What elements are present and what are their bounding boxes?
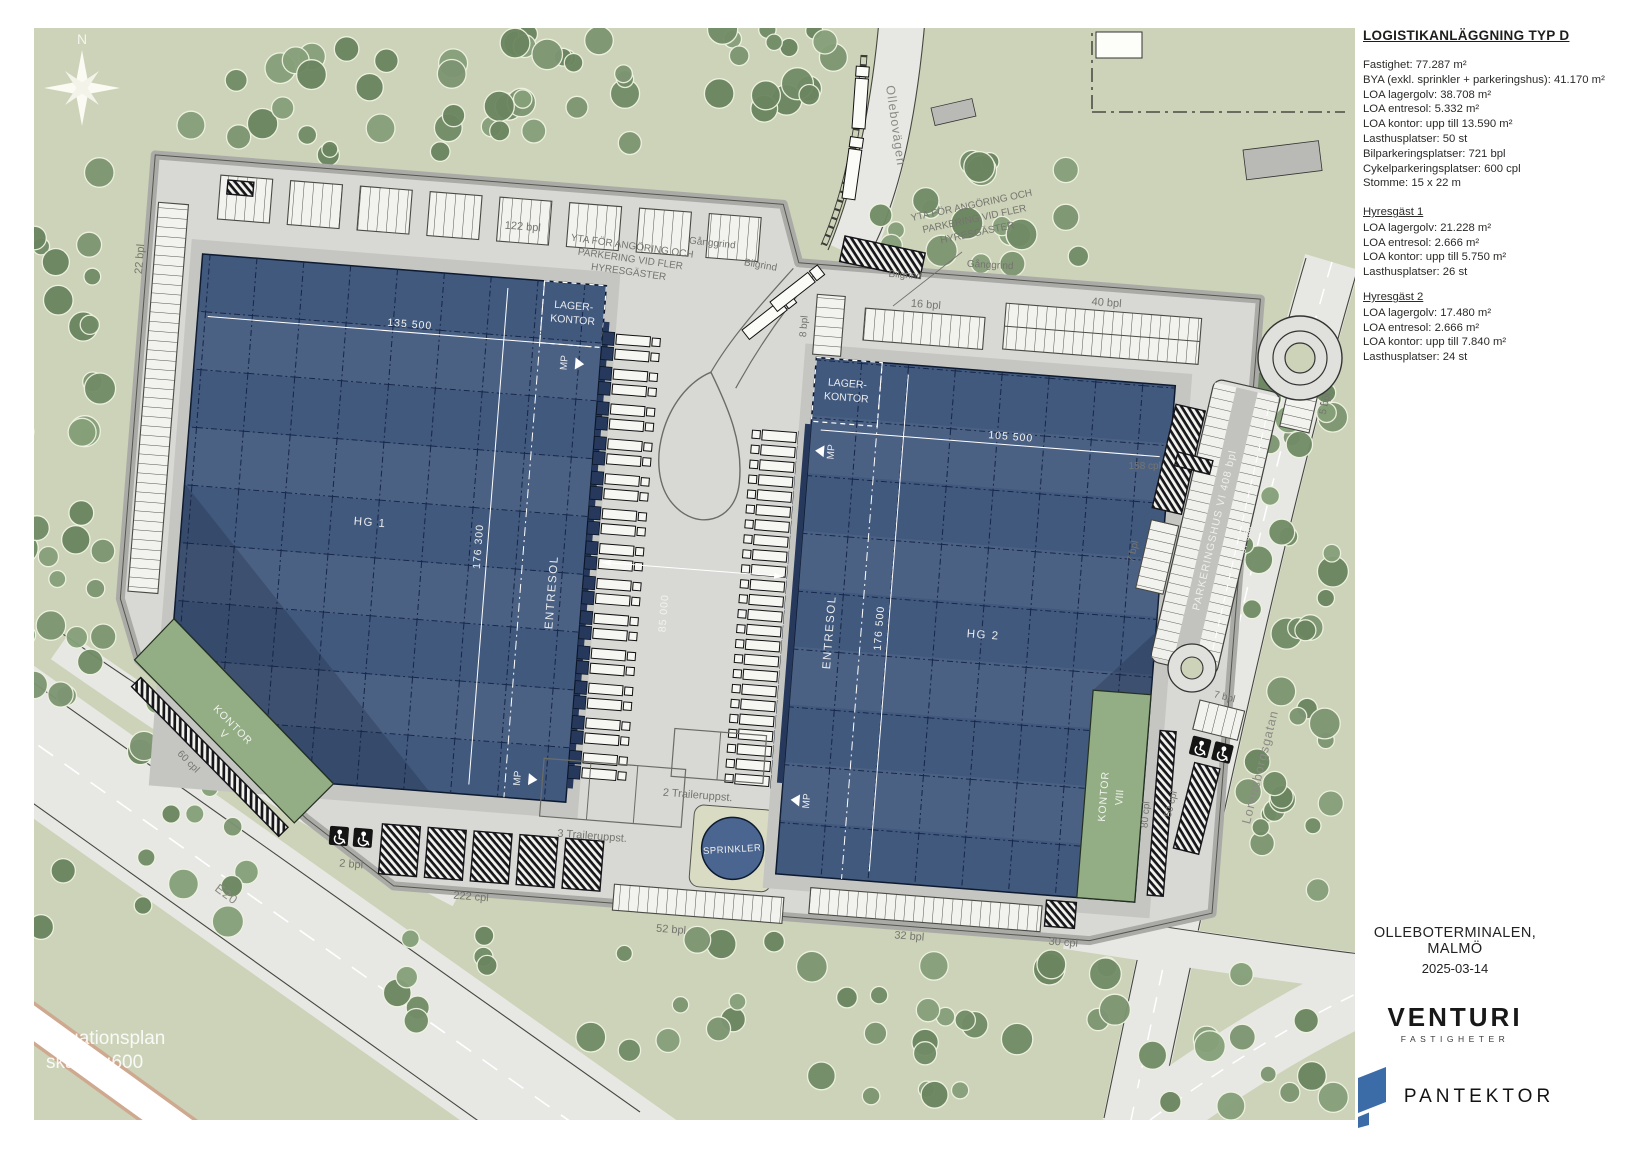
building-hg1: 135 500 176 300 ENTRESOL HG 1 LAGER- KON…: [108, 236, 621, 873]
tenant1-line: Lasthusplatser: 26 st: [1363, 265, 1506, 280]
tree: [952, 1082, 969, 1099]
facility-line: Bilparkeringsplatser: 721 bpl: [1363, 147, 1605, 162]
panel-title: LOGISTIKANLÄGGNING TYP D: [1363, 28, 1569, 43]
tree: [1318, 1082, 1348, 1112]
mp-label: MP: [825, 444, 837, 460]
cycle-count-80: 80 cpl: [1140, 801, 1153, 828]
tree: [85, 158, 115, 188]
tree: [1263, 771, 1287, 795]
tree: [1267, 677, 1296, 706]
tree: [514, 90, 532, 108]
mp-label: MP: [801, 793, 813, 809]
tenant1-line: LOA lagergolv: 21.228 m²: [1363, 221, 1506, 236]
tree: [869, 204, 892, 227]
north-label: N: [77, 31, 87, 47]
tree: [837, 987, 858, 1008]
tree: [955, 1010, 975, 1030]
tree: [1306, 879, 1329, 902]
facility-line: BYA (exkl. sprinkler + parkeringshus): 4…: [1363, 73, 1605, 88]
accessible-parking-icon: [329, 826, 349, 846]
plan-note: Situationsplan: [46, 1028, 165, 1049]
tree: [396, 966, 418, 988]
tree: [1090, 958, 1122, 990]
tenant1-data: Hyresgäst 1 LOA lagergolv: 21.228 m² LOA…: [1363, 205, 1506, 280]
tree: [585, 26, 614, 55]
tree: [68, 418, 96, 446]
tree: [48, 682, 73, 707]
tree: [1323, 544, 1341, 562]
gate-hatch: [227, 180, 254, 196]
tree: [1295, 620, 1316, 641]
tree: [522, 119, 546, 143]
tree: [618, 132, 641, 155]
tree: [80, 315, 99, 334]
parking-count-52: 52 bpl: [656, 923, 687, 937]
tree: [322, 141, 338, 157]
tree: [964, 152, 995, 183]
tree: [91, 624, 116, 649]
tree: [437, 60, 466, 89]
tree: [799, 85, 820, 106]
tree: [91, 539, 115, 563]
tree: [69, 501, 94, 526]
tenant1-line: LOA kontor: upp till 5.750 m²: [1363, 250, 1506, 265]
tree: [375, 49, 399, 73]
tenant2-data: Hyresgäst 2 LOA lagergolv: 17.480 m² LOA…: [1363, 290, 1506, 365]
tree: [1294, 1008, 1318, 1032]
bilgrind-label: Bilgrind: [888, 269, 922, 282]
building-hg2: 105 500 176 500 ENTRESOL HG 2 LAGER- KON…: [763, 344, 1193, 919]
tree: [356, 74, 383, 101]
tree: [334, 37, 359, 62]
tree: [672, 997, 688, 1013]
tree: [1280, 1082, 1300, 1102]
facility-line: Fastighet: 77.287 m²: [1363, 58, 1605, 73]
tenant2-line: Lasthusplatser: 24 st: [1363, 350, 1506, 365]
facility-line: LOA kontor: upp till 13.590 m²: [1363, 117, 1605, 132]
tree: [1261, 487, 1280, 506]
tree: [49, 571, 66, 588]
tree: [797, 951, 828, 982]
tree: [1318, 791, 1343, 816]
tree: [1217, 1092, 1245, 1120]
mp-label: MP: [512, 770, 524, 786]
tree: [84, 373, 115, 404]
tree: [78, 649, 104, 675]
tree: [1099, 994, 1130, 1025]
tree: [862, 1087, 880, 1105]
kontor-viii-label: VIII: [1113, 789, 1126, 806]
venturi-logo: VENTURI: [1355, 1002, 1555, 1033]
tree: [813, 30, 837, 54]
cycle-count-158: 158 cpl: [1129, 461, 1161, 472]
tree: [84, 268, 101, 285]
roundabout-small: [1168, 644, 1216, 692]
site-plan: 122 bpl 22 bpl 135 500 176 300 ENTRESOL …: [0, 0, 1355, 1154]
pantektor-logo: PANTEKTOR: [1404, 1086, 1554, 1108]
tree: [564, 54, 583, 73]
tree: [484, 91, 514, 121]
tree: [162, 805, 180, 823]
tree: [1037, 950, 1066, 979]
tree: [532, 39, 563, 70]
tree: [576, 1022, 606, 1052]
tree: [921, 1081, 948, 1108]
tree: [490, 121, 510, 141]
drawing-sheet: 122 bpl 22 bpl 135 500 176 300 ENTRESOL …: [0, 0, 1648, 1154]
hg1-label: HG 1: [353, 516, 387, 531]
tree: [169, 869, 199, 899]
cycle-count-30: 30 cpl: [1048, 935, 1078, 949]
tree: [1160, 1091, 1181, 1112]
tree: [766, 34, 782, 50]
ganggrind-label: Gånggrind: [967, 258, 1014, 272]
parking-count-32: 32 bpl: [894, 929, 925, 943]
tree: [298, 126, 317, 145]
tree: [42, 249, 69, 276]
tree: [864, 1022, 886, 1044]
tree: [1305, 818, 1321, 834]
parking-count-40: 40 bpl: [1091, 296, 1122, 310]
tree: [1317, 589, 1334, 606]
tenant2-line: LOA kontor: upp till 7.840 m²: [1363, 335, 1506, 350]
tree: [706, 1017, 730, 1041]
tree: [1260, 1066, 1276, 1082]
tenant1-title: Hyresgäst 1: [1363, 205, 1506, 220]
tree: [86, 579, 105, 598]
tree: [36, 611, 66, 641]
tree: [920, 952, 949, 981]
parking-count-16: 16 bpl: [910, 298, 941, 312]
title-block: OLLEBOTERMINALEN, MALMÖ 2025-03-14 VENTU…: [1355, 925, 1555, 1128]
facility-line: LOA entresol: 5.332 m²: [1363, 102, 1605, 117]
tree: [1289, 707, 1307, 725]
parking-count-2: 2 bpl: [339, 858, 364, 872]
tree: [808, 1062, 836, 1090]
facility-line: Cykelparkeringsplatser: 600 cpl: [1363, 162, 1605, 177]
tree: [1053, 157, 1078, 182]
tree: [138, 849, 155, 866]
tree: [1229, 1024, 1255, 1050]
tree: [366, 114, 395, 143]
tree: [297, 60, 327, 90]
tree: [177, 111, 205, 139]
tree: [62, 526, 90, 554]
tree: [430, 142, 450, 162]
facility-data: Fastighet: 77.287 m² BYA (exkl. sprinkle…: [1363, 58, 1605, 191]
tree: [134, 897, 152, 915]
hg2-label: HG 2: [966, 628, 1000, 643]
tenant2-title: Hyresgäst 2: [1363, 290, 1506, 305]
tree: [1243, 600, 1262, 619]
tree: [1001, 1023, 1032, 1054]
tree: [1298, 1062, 1327, 1091]
tree: [1194, 1031, 1225, 1062]
tree: [1230, 962, 1254, 986]
tree: [618, 1039, 640, 1061]
tree: [914, 1042, 937, 1065]
tree: [1252, 819, 1269, 836]
tree: [227, 125, 251, 149]
tree: [272, 97, 294, 119]
tree: [186, 805, 204, 823]
project-name: OLLEBOTERMINALEN, MALMÖ: [1355, 925, 1555, 957]
facility-line: Lasthusplatser: 50 st: [1363, 132, 1605, 147]
tree: [707, 929, 736, 958]
venturi-logo-sub: FASTIGHETER: [1355, 1034, 1555, 1044]
plan-note: skala 1:600: [46, 1052, 143, 1073]
tree: [1068, 246, 1088, 266]
tree: [66, 627, 88, 649]
info-panel: LOGISTIKANLÄGGNING TYP D Fastighet: 77.2…: [1355, 0, 1648, 1154]
tree: [704, 79, 734, 109]
tree: [402, 930, 420, 948]
facility-line: Stomme: 15 x 22 m: [1363, 176, 1605, 191]
outbuilding: [1096, 32, 1142, 58]
tree: [1053, 204, 1079, 230]
tree: [1269, 519, 1295, 545]
pantektor-flag-icon: [1356, 1066, 1390, 1128]
tree: [684, 926, 711, 953]
tree: [616, 945, 632, 961]
tree: [1309, 708, 1340, 739]
mp-label: MP: [559, 354, 571, 370]
tree: [751, 81, 780, 110]
tree: [475, 926, 494, 945]
tree: [1286, 431, 1312, 457]
tree: [500, 28, 530, 58]
tree: [916, 998, 939, 1021]
tree: [404, 1009, 429, 1034]
facility-line: LOA lagergolv: 38.708 m²: [1363, 88, 1605, 103]
tree: [223, 817, 242, 836]
tenant2-line: LOA lagergolv: 17.480 m²: [1363, 306, 1506, 321]
tree: [615, 65, 633, 83]
tree: [225, 69, 247, 91]
tree: [51, 859, 75, 883]
tree: [442, 104, 464, 126]
tree: [656, 1028, 680, 1052]
tree: [77, 232, 102, 257]
tree: [38, 547, 58, 567]
tree: [764, 931, 785, 952]
tree: [729, 46, 749, 66]
tenant1-line: LOA entresol: 2.666 m²: [1363, 236, 1506, 251]
tree: [870, 987, 887, 1004]
accessible-parking-icon: [353, 828, 373, 848]
roundabout-large: [1258, 316, 1342, 400]
parking-count-8: 8 bpl: [798, 315, 811, 337]
parking-count-22: 22 bpl: [133, 244, 147, 275]
tenant2-line: LOA entresol: 2.666 m²: [1363, 321, 1506, 336]
tree: [729, 993, 746, 1010]
tree: [212, 906, 243, 937]
tree: [477, 955, 497, 975]
tree: [566, 96, 588, 118]
project-date: 2025-03-14: [1355, 961, 1555, 976]
tree: [44, 285, 74, 315]
tree: [1138, 1041, 1166, 1069]
